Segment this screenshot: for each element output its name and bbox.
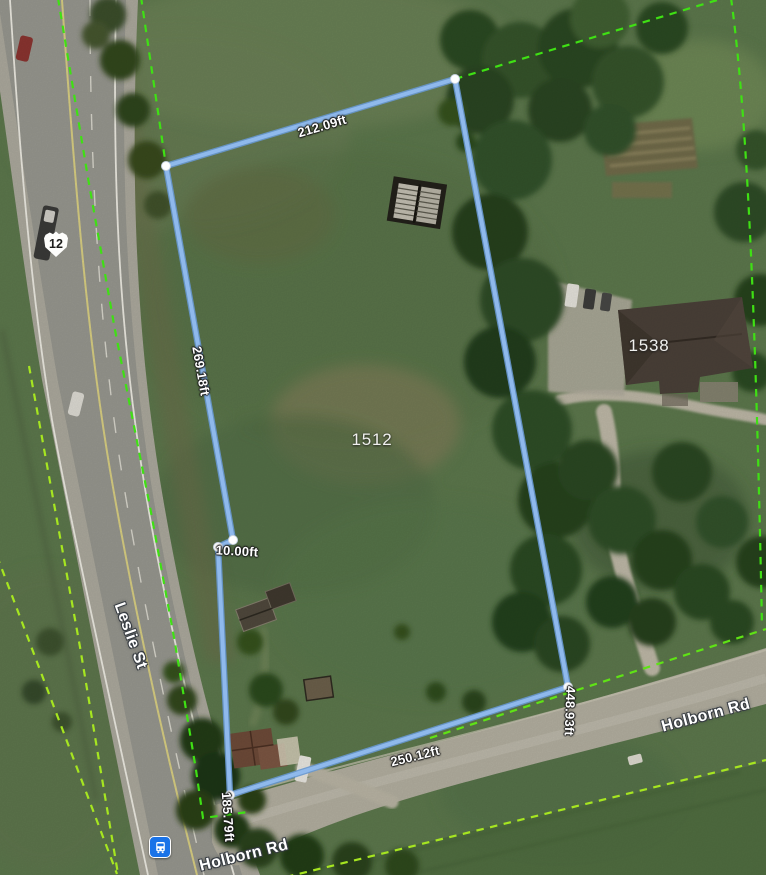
measure-vertex[interactable]	[564, 683, 573, 692]
measure-vertex[interactable]	[451, 75, 460, 84]
bus-stop-icon[interactable]	[149, 836, 171, 858]
highway-shield-number: 12	[49, 237, 63, 251]
measure-vertex[interactable]	[214, 543, 223, 552]
satellite-map[interactable]: 212.09ft 269.18ft 10.00ft 185.79ft 250.1…	[0, 0, 766, 875]
measure-vertex[interactable]	[162, 162, 171, 171]
measure-vertex[interactable]	[226, 791, 235, 800]
measure-vertex[interactable]	[229, 536, 238, 545]
aerial-imagery	[0, 0, 766, 875]
bus-glyph	[154, 841, 167, 854]
